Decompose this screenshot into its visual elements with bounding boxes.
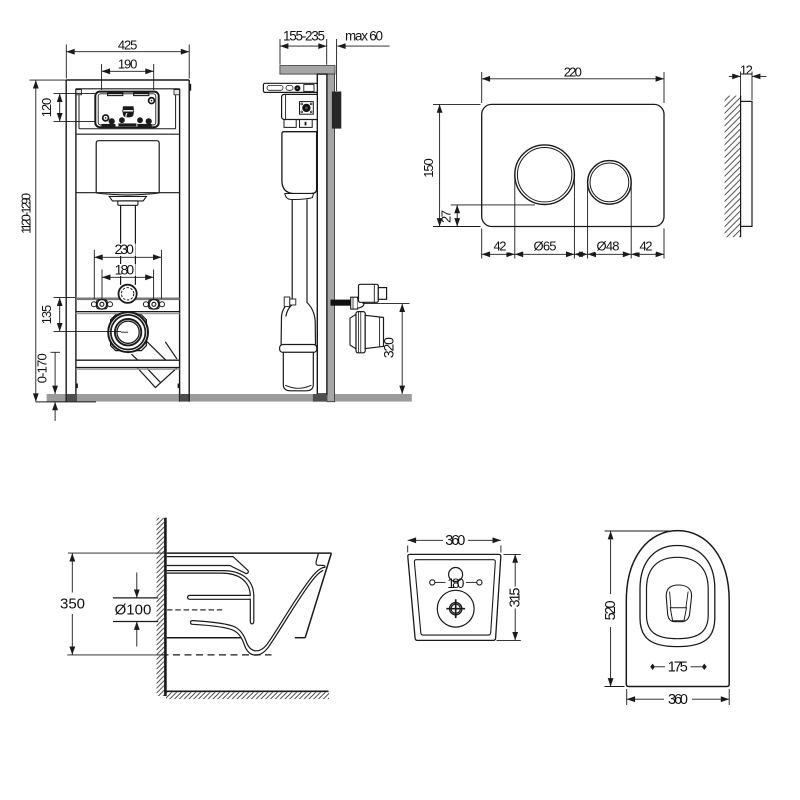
svg-text:180: 180	[115, 261, 135, 277]
svg-text:425: 425	[118, 37, 138, 52]
svg-text:360: 360	[445, 533, 465, 549]
svg-text:1120 - 1290: 1120 - 1290	[19, 193, 34, 234]
svg-text:180: 180	[447, 576, 464, 591]
svg-text:230: 230	[114, 241, 134, 257]
svg-text:190: 190	[118, 57, 138, 72]
svg-text:315: 315	[508, 588, 524, 608]
svg-text:175: 175	[668, 660, 688, 676]
svg-text:320: 320	[381, 337, 397, 358]
svg-text:Ø48: Ø48	[597, 239, 620, 254]
svg-text:135: 135	[39, 305, 54, 325]
svg-text:350: 350	[60, 595, 85, 612]
svg-text:155-235: 155-235	[283, 29, 325, 44]
svg-text:220: 220	[564, 64, 582, 79]
svg-text:27: 27	[439, 210, 454, 223]
svg-text:0-170: 0-170	[35, 353, 50, 383]
svg-text:360: 360	[668, 692, 688, 708]
svg-text:42: 42	[640, 239, 653, 254]
svg-text:520: 520	[603, 600, 619, 620]
svg-text:max 60: max 60	[345, 29, 383, 44]
svg-text:42: 42	[494, 239, 507, 254]
svg-text:150: 150	[421, 158, 436, 178]
svg-text:120: 120	[39, 98, 54, 118]
svg-text:Ø100: Ø100	[115, 602, 152, 619]
svg-text:12: 12	[740, 63, 753, 78]
svg-text:Ø65: Ø65	[534, 239, 557, 254]
